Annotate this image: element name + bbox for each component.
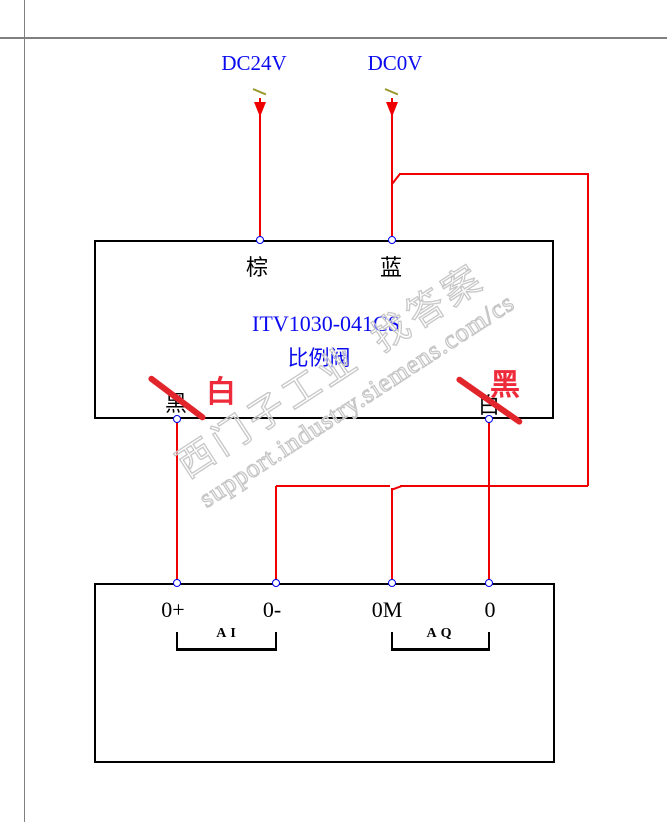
valve-terminal-brown-label: 棕 [246,250,268,282]
wire-break-tick-right [385,88,399,95]
page-margin-hline [0,37,667,39]
page-margin-vline [24,0,26,822]
wire-break-tick-left [253,88,267,95]
wire-dc0v-to-blue [391,98,393,238]
terminal-circle-0 [485,579,493,587]
plc-terminal-0: 0 [485,597,496,623]
wire-mid-horizontal-right [400,485,588,487]
plc-terminal-0minus: 0- [263,597,281,623]
dc24v-label: DC24V [221,51,286,76]
terminal-circle-valve-brown [256,236,264,244]
wire-dc24v-to-brown [259,98,261,238]
terminal-circle-0m [388,579,396,587]
watermark-gap [364,352,382,364]
dc0v-label: DC0V [368,51,423,76]
terminal-circle-valve-black [173,415,181,423]
terminal-circle-valve-blue [388,236,396,244]
terminal-circle-0minus [272,579,280,587]
dc0v-arrow-down-icon [386,102,398,117]
wire-right-vertical [587,173,589,486]
aq-bracket-bar [391,648,490,651]
wire-to-0minus [275,486,277,581]
ai-group-label: AI [216,626,240,642]
wire-black-to-0plus [176,421,178,581]
ai-bracket-bar [176,648,277,651]
aq-group-label: AQ [427,626,456,642]
plc-terminal-0plus: 0+ [161,597,184,623]
terminal-circle-valve-white [485,415,493,423]
wire-branch-top-horizontal [399,173,588,175]
wire-white-to-0 [488,421,490,581]
dc24v-arrow-down-icon [254,102,266,117]
correction-white-char: 白 [206,367,236,411]
valve-terminal-blue-label: 蓝 [380,250,402,282]
wire-mid-horizontal-left [276,485,390,487]
wire-to-0m [391,488,393,581]
terminal-circle-0plus [173,579,181,587]
correction-black-char: 黑 [490,360,520,404]
plc-terminal-0m: 0M [372,597,403,623]
wiring-diagram: DC24V DC0V 棕 蓝 ITV1030-041CS 比例阀 黑 白 白 黑… [0,0,667,823]
